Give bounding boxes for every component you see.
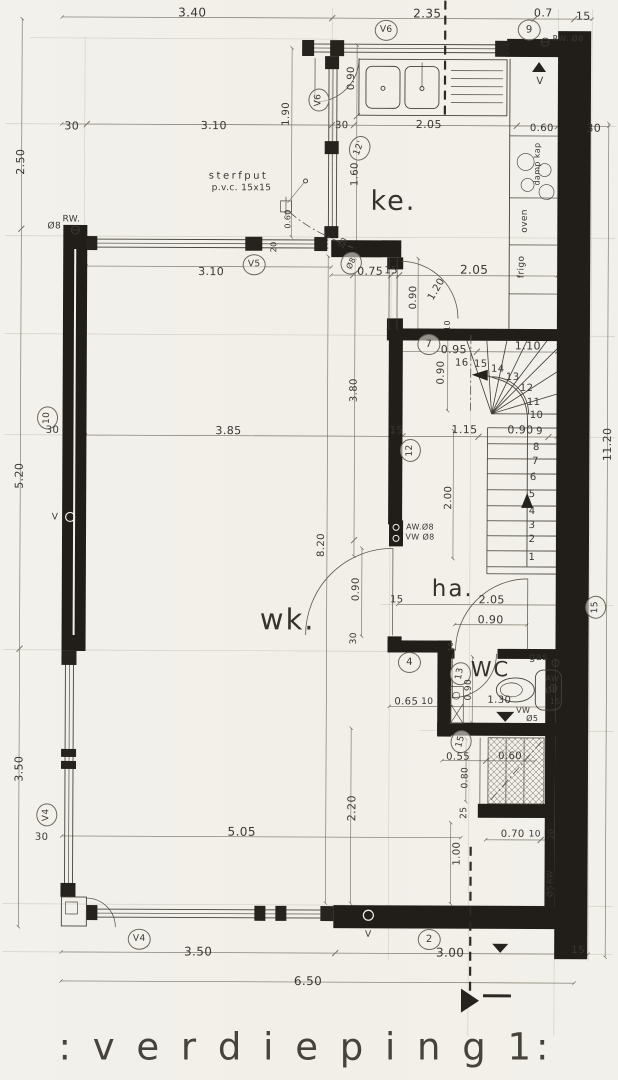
dim-label: 2.05	[416, 119, 442, 130]
dim-label: 20	[270, 241, 278, 252]
dim-label: 30	[350, 632, 359, 644]
window-tag-v4: V4	[36, 803, 57, 826]
dim-label: 3.00	[436, 947, 464, 959]
pipe-vw-label: VW Ø8	[405, 533, 434, 541]
labels-layer: 3.402.350.7159RW. Ø8V6V0.90V62.50303.101…	[0, 0, 618, 1080]
dim-label: AW	[546, 675, 560, 683]
room-label-ha: ha.	[432, 578, 474, 601]
vent-label: V	[536, 77, 543, 87]
dim-label: Ø8	[545, 687, 557, 695]
dim-label: 3.85	[215, 425, 241, 436]
dim-label: 8.20	[317, 533, 327, 557]
dim-label: 20	[548, 829, 556, 840]
stair-step-number: 5	[529, 490, 536, 500]
dim-label: 1.15	[451, 424, 477, 435]
dim-label: 15	[576, 11, 591, 22]
dim-label: 0.90	[352, 577, 362, 601]
stair-step-number: 15	[474, 360, 488, 370]
dim-label: 0.65	[394, 697, 418, 707]
dim-label: 2.50	[15, 149, 26, 175]
dim-label: 0.60	[284, 209, 292, 228]
dim-label: 20	[337, 236, 349, 249]
dim-label: 0.90	[507, 424, 533, 435]
room-label-wc: WC	[471, 659, 511, 680]
dim-label: 0.60	[498, 752, 522, 762]
dim-label: 0.90	[478, 614, 504, 625]
dim-label: 1.10	[515, 340, 541, 351]
dim-label: 10	[448, 642, 455, 652]
dim-label: 3.40	[178, 6, 206, 18]
stair-step-number: 16	[455, 359, 469, 369]
dim-label: Ø5	[546, 885, 554, 897]
dim-label: 1.90	[282, 102, 292, 126]
dim-label: 5.05	[228, 826, 256, 838]
window-tag-v6: V6	[375, 20, 398, 41]
dim-label: 2.05	[460, 264, 488, 276]
ref-bubble-9: 9	[518, 19, 541, 40]
window-tag-v5: V5	[243, 254, 266, 275]
dim-label: 0.80	[461, 767, 470, 789]
stair-step-number: 2	[529, 535, 536, 545]
sterfput-spec: p.v.c. 15x15	[212, 184, 272, 193]
dim-label: 0.60	[530, 124, 554, 134]
dim-label: 0.95	[441, 344, 467, 355]
dim-label: 2.00	[444, 486, 454, 510]
vent-label: V	[52, 513, 59, 522]
dim-label: 0.90	[347, 66, 357, 90]
dim-label: 30	[46, 426, 60, 436]
dim-label: 3.80	[350, 378, 360, 402]
dim-label: Ø5	[526, 715, 538, 723]
vent-label: V	[365, 931, 372, 940]
dim-label: 6.50	[294, 975, 322, 987]
dim-label: 15	[550, 698, 561, 706]
dim-label: 0.90	[437, 361, 447, 385]
dim-label: 3.10	[201, 120, 227, 131]
plan-title: : v e r d i e p i n g 1:	[59, 1026, 554, 1069]
room-label-ke: ke.	[370, 188, 416, 215]
stair-step-number: 8	[533, 443, 540, 453]
sterfput-label: sterfput	[209, 172, 269, 182]
dim-label: 2.20	[346, 795, 357, 821]
dim-label: 5.20	[14, 463, 25, 489]
appliance-dampkap: damp kap	[534, 142, 542, 185]
scanned-floorplan-page: 3.402.350.7159RW. Ø8V6V0.90V62.50303.101…	[0, 0, 618, 1080]
dim-label: 0.75	[357, 266, 383, 277]
window-tag-v4: V4	[128, 929, 151, 950]
dim-label: 11.20	[602, 428, 613, 462]
gas-label: gas	[529, 653, 548, 663]
stair-step-number: 3	[529, 521, 536, 531]
ref-bubble-15: 15	[585, 596, 606, 619]
dim-label: Ø8	[48, 222, 62, 231]
stair-step-number: 9	[536, 427, 543, 437]
stair-step-number: 13	[506, 373, 520, 383]
stair-step-number: 4	[529, 507, 536, 517]
stair-step-number: 1	[529, 553, 536, 563]
rw-pipe-label: RW	[547, 870, 555, 884]
dim-label: 1.30	[487, 696, 511, 706]
dim-label: 30	[586, 123, 601, 134]
dim-label: 15	[390, 595, 404, 605]
floorplan: 3.402.350.7159RW. Ø8V6V0.90V62.50303.101…	[0, 0, 618, 1080]
stair-step-number: 14	[491, 365, 505, 375]
dim-label: 30	[35, 833, 49, 843]
ref-bubble-7: 7	[417, 334, 440, 355]
dim-label: 0.90	[409, 285, 419, 309]
pipe-aw-label: AW.Ø8	[406, 523, 434, 531]
dim-label: 1.20	[427, 277, 448, 303]
dim-label: 3.10	[198, 266, 224, 277]
dim-label: 0.70	[501, 830, 525, 840]
ref-bubble-4: 4	[398, 652, 421, 673]
stair-step-number: 7	[532, 457, 539, 467]
dim-label: 2.35	[413, 7, 441, 19]
room-label-wk: wk.	[260, 605, 316, 634]
dim-label: 30	[64, 120, 79, 131]
dim-label: 3.50	[13, 756, 24, 782]
window-tag-v6: V6	[308, 88, 329, 111]
stair-step-number: 12	[520, 384, 534, 394]
dim-label: 10	[421, 698, 433, 707]
dim-label: 10	[529, 830, 541, 839]
appliance-oven: oven	[521, 209, 530, 233]
rw-pipe-label: RW. Ø8	[553, 35, 584, 43]
dim-label: 25	[460, 807, 469, 819]
dim-label: 30	[335, 121, 349, 131]
dim-label: 15	[390, 426, 404, 436]
stair-step-number: 10	[530, 411, 544, 421]
dim-label: 0.7	[534, 7, 553, 18]
dim-label: 1.60	[351, 162, 361, 186]
dim-label: 10	[444, 320, 452, 331]
appliance-frigo: frigo	[518, 256, 527, 279]
rw-pipe-label: RW.	[62, 215, 80, 224]
ref-bubble-12b: 12	[400, 439, 421, 462]
stair-step-number: 11	[527, 398, 541, 408]
dim-label: 15	[571, 946, 585, 956]
dim-label: 3.50	[184, 945, 212, 957]
ref-bubble-12: 12'	[346, 133, 374, 164]
dim-label: 0.90	[465, 679, 474, 701]
dim-label: 0.55	[446, 753, 470, 763]
dim-label: 1.00	[453, 842, 463, 866]
dim-label: 2.05	[479, 594, 505, 605]
dim-label: 15	[384, 266, 398, 276]
stair-step-number: 6	[530, 473, 537, 483]
